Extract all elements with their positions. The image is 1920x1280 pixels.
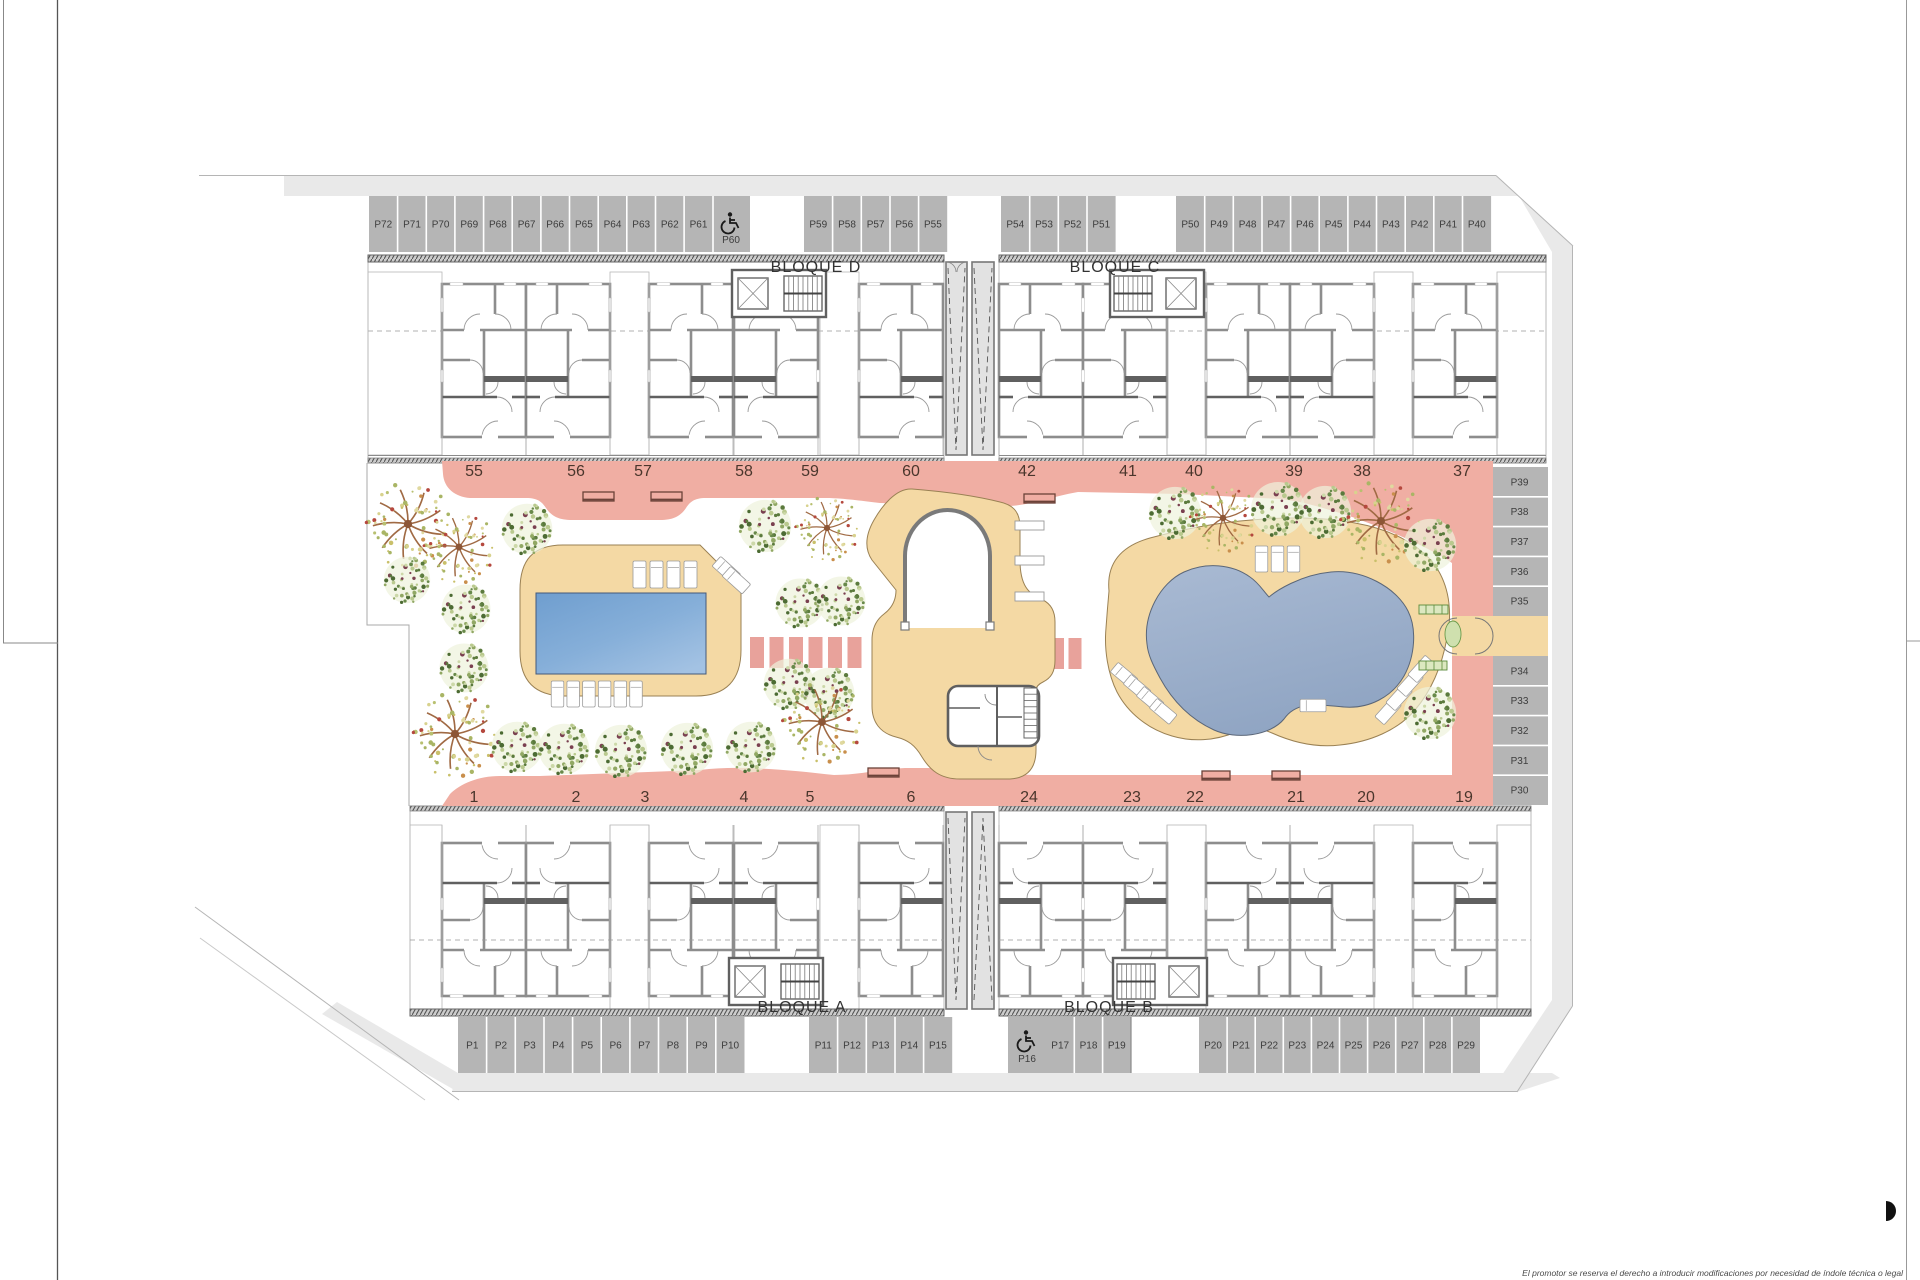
svg-text:P4: P4: [552, 1041, 565, 1052]
svg-text:P8: P8: [667, 1041, 680, 1052]
svg-text:P53: P53: [1035, 220, 1053, 231]
svg-text:21: 21: [1287, 789, 1305, 806]
svg-text:P12: P12: [843, 1041, 861, 1052]
svg-text:P10: P10: [721, 1041, 739, 1052]
svg-text:P58: P58: [838, 220, 856, 231]
svg-text:P61: P61: [690, 220, 708, 231]
svg-text:P25: P25: [1345, 1041, 1363, 1052]
svg-text:6: 6: [907, 789, 916, 806]
svg-text:P27: P27: [1401, 1041, 1419, 1052]
svg-text:57: 57: [634, 463, 652, 480]
svg-text:P5: P5: [581, 1041, 594, 1052]
svg-text:El promotor se reserva el dere: El promotor se reserva el derecho a intr…: [1522, 1268, 1904, 1278]
svg-text:P38: P38: [1511, 507, 1529, 518]
svg-text:P68: P68: [489, 220, 507, 231]
svg-text:P15: P15: [929, 1041, 947, 1052]
svg-text:56: 56: [567, 463, 585, 480]
svg-text:BLOQUE C: BLOQUE C: [1070, 259, 1161, 276]
svg-text:P29: P29: [1457, 1041, 1475, 1052]
svg-text:22: 22: [1186, 789, 1204, 806]
svg-text:P44: P44: [1353, 220, 1371, 231]
svg-text:P57: P57: [867, 220, 885, 231]
svg-text:P31: P31: [1511, 756, 1529, 767]
svg-text:P2: P2: [495, 1041, 508, 1052]
svg-text:41: 41: [1119, 463, 1137, 480]
svg-text:42: 42: [1018, 463, 1036, 480]
svg-text:P19: P19: [1108, 1041, 1126, 1052]
svg-text:P39: P39: [1511, 477, 1529, 488]
svg-text:BLOQUE D: BLOQUE D: [771, 259, 862, 276]
svg-text:P9: P9: [695, 1041, 708, 1052]
svg-text:P35: P35: [1511, 597, 1529, 608]
svg-text:23: 23: [1123, 789, 1141, 806]
svg-text:1: 1: [470, 789, 479, 806]
svg-text:P13: P13: [872, 1041, 890, 1052]
svg-text:P59: P59: [809, 220, 827, 231]
svg-text:P49: P49: [1210, 220, 1228, 231]
svg-text:P50: P50: [1181, 220, 1199, 231]
svg-text:P36: P36: [1511, 567, 1529, 578]
svg-text:4: 4: [740, 789, 749, 806]
svg-text:P17: P17: [1051, 1041, 1069, 1052]
svg-text:BLOQUE B: BLOQUE B: [1064, 999, 1154, 1016]
svg-text:P46: P46: [1296, 220, 1314, 231]
svg-text:P52: P52: [1064, 220, 1082, 231]
svg-text:P48: P48: [1239, 220, 1257, 231]
svg-text:P55: P55: [924, 220, 942, 231]
svg-text:P32: P32: [1511, 726, 1529, 737]
svg-text:P65: P65: [575, 220, 593, 231]
svg-text:P62: P62: [661, 220, 679, 231]
svg-text:24: 24: [1020, 789, 1038, 806]
svg-text:P3: P3: [523, 1041, 536, 1052]
svg-text:P6: P6: [609, 1041, 622, 1052]
svg-text:P72: P72: [374, 220, 392, 231]
svg-text:P24: P24: [1317, 1041, 1335, 1052]
svg-text:39: 39: [1285, 463, 1303, 480]
svg-text:P23: P23: [1288, 1041, 1306, 1052]
svg-text:P51: P51: [1092, 220, 1110, 231]
svg-text:P64: P64: [604, 220, 622, 231]
svg-text:P41: P41: [1439, 220, 1457, 231]
svg-text:P18: P18: [1080, 1041, 1098, 1052]
svg-text:P20: P20: [1204, 1041, 1222, 1052]
svg-text:5: 5: [806, 789, 815, 806]
svg-text:P7: P7: [638, 1041, 651, 1052]
svg-text:38: 38: [1353, 463, 1371, 480]
svg-text:59: 59: [801, 463, 819, 480]
svg-text:P66: P66: [546, 220, 564, 231]
svg-text:P43: P43: [1382, 220, 1400, 231]
svg-text:20: 20: [1357, 789, 1375, 806]
svg-text:40: 40: [1185, 463, 1203, 480]
svg-text:P26: P26: [1373, 1041, 1391, 1052]
svg-text:P11: P11: [815, 1041, 832, 1052]
svg-text:P63: P63: [632, 220, 650, 231]
svg-text:P71: P71: [403, 220, 421, 231]
svg-text:P14: P14: [900, 1041, 918, 1052]
svg-text:BLOQUE A: BLOQUE A: [758, 999, 847, 1016]
svg-text:60: 60: [902, 463, 920, 480]
svg-text:P45: P45: [1325, 220, 1343, 231]
svg-text:P47: P47: [1267, 220, 1285, 231]
svg-text:P67: P67: [518, 220, 536, 231]
svg-text:P70: P70: [432, 220, 450, 231]
svg-text:P37: P37: [1511, 537, 1529, 548]
svg-text:P28: P28: [1429, 1041, 1447, 1052]
svg-text:P16: P16: [1018, 1054, 1036, 1065]
svg-text:19: 19: [1455, 789, 1473, 806]
svg-text:P69: P69: [460, 220, 478, 231]
svg-text:P34: P34: [1511, 666, 1529, 677]
svg-text:P33: P33: [1511, 696, 1529, 707]
svg-text:P42: P42: [1411, 220, 1429, 231]
svg-text:P40: P40: [1468, 220, 1486, 231]
svg-text:P1: P1: [466, 1041, 479, 1052]
svg-text:58: 58: [735, 463, 753, 480]
svg-text:P30: P30: [1511, 786, 1529, 797]
svg-text:P22: P22: [1260, 1041, 1278, 1052]
svg-text:3: 3: [641, 789, 650, 806]
svg-text:P21: P21: [1232, 1041, 1250, 1052]
svg-text:55: 55: [465, 463, 483, 480]
svg-text:P56: P56: [895, 220, 913, 231]
svg-text:37: 37: [1453, 463, 1471, 480]
svg-text:P54: P54: [1006, 220, 1024, 231]
svg-text:2: 2: [572, 789, 581, 806]
svg-text:P60: P60: [722, 235, 740, 246]
